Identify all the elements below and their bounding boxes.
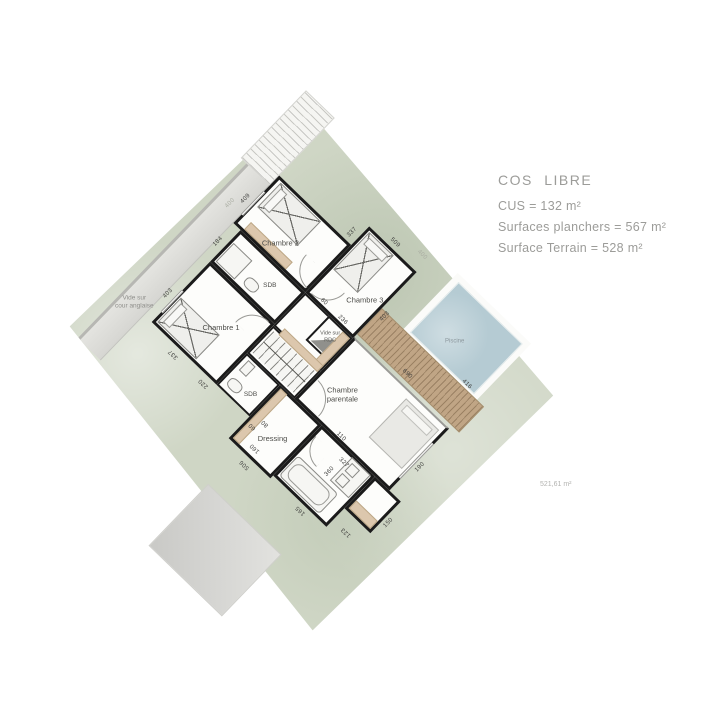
room-label-sdb-2: SDB	[244, 391, 257, 399]
room-label-chambre-3: Chambre 3	[346, 295, 383, 304]
rotated-plan-group: Chambre 1 SDB Chambre 2 Chambre 3 SDB Ch…	[25, 83, 591, 648]
plan-title: COS LIBRE	[498, 172, 666, 188]
annotation-surface-terrain: Surface Terrain = 528 m²	[498, 238, 666, 259]
annotation-surfaces-planchers: Surfaces planchers = 567 m²	[498, 217, 666, 238]
room-label-cour-anglaise: Vide surcour anglaise	[115, 294, 154, 310]
room-label-chambre-2: Chambre 2	[262, 239, 299, 248]
room-label-vide-rdc: Vide surRDC	[320, 330, 340, 344]
annotation-block: COS LIBRE CUS = 132 m² Surfaces plancher…	[498, 172, 666, 259]
room-label-parentale: Chambreparentale	[327, 386, 358, 405]
annotation-cus: CUS = 132 m²	[498, 196, 666, 217]
parcel-area-label: 521,61 m²	[540, 481, 572, 488]
room-label-piscine: Piscine	[445, 338, 464, 346]
room-label-dressing: Dressing	[258, 434, 288, 443]
floor-plan-sheet: COS LIBRE CUS = 132 m² Surfaces plancher…	[0, 0, 720, 720]
room-label-chambre-1: Chambre 1	[203, 323, 240, 332]
room-label-sdb-1: SDB	[263, 282, 276, 290]
